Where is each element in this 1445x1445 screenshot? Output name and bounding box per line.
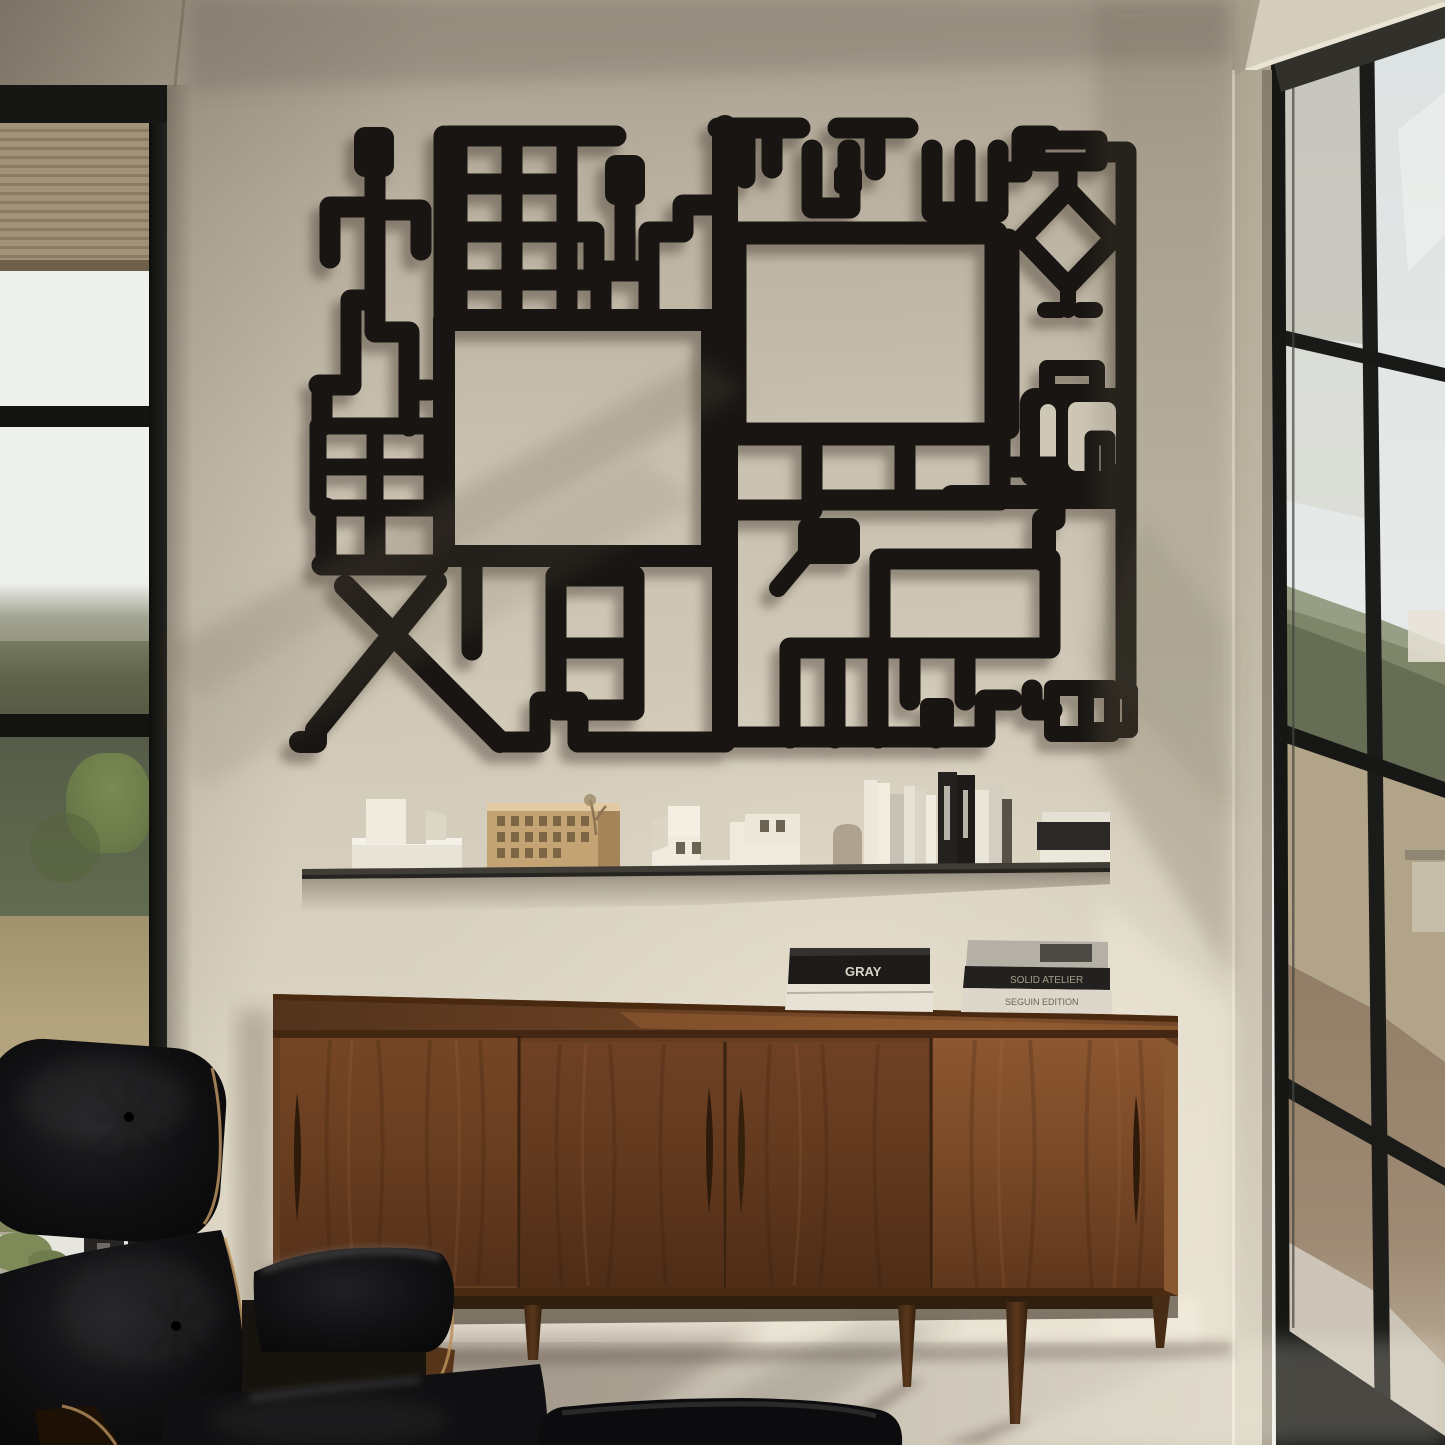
svg-text:SOLID ATELIER: SOLID ATELIER bbox=[1010, 975, 1083, 986]
svg-text:GRAY: GRAY bbox=[845, 964, 882, 979]
svg-text:SEGUIN EDITION: SEGUIN EDITION bbox=[1005, 997, 1079, 1007]
